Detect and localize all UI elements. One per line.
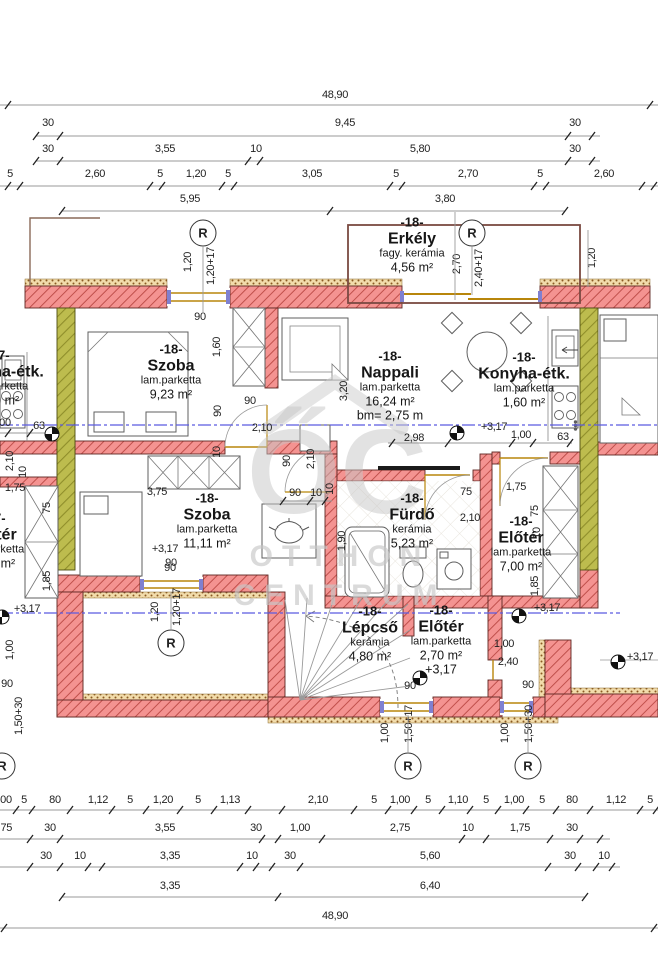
dimension-label: 6,40: [420, 880, 440, 892]
dimension-label: 5: [425, 794, 431, 806]
dimension-label: 80: [49, 794, 61, 806]
dimension-label: 3,75: [147, 486, 167, 498]
dimension-label: 10: [324, 483, 336, 495]
dimension-label: 5,60: [420, 850, 440, 862]
dimension-label: +3,17: [14, 603, 40, 615]
dimension-label: 30: [566, 822, 578, 834]
floorplan-page: { "watermark": { "brand_initials": "ŐC",…: [0, 0, 658, 963]
dimension-label: 80: [566, 794, 578, 806]
dimension-label: 1,50+17: [403, 705, 415, 743]
dimension-label: 10: [531, 527, 543, 539]
dimension-label: 1,75: [506, 481, 526, 493]
dimension-label: 2,70: [458, 168, 478, 180]
dimension-label: 2,60: [85, 168, 105, 180]
dimension-label: 48,90: [322, 89, 348, 101]
dimension-label: 2,75: [390, 822, 410, 834]
dimension-label: 75: [529, 505, 541, 517]
dimension-label: 3,55: [155, 822, 175, 834]
dimension-label: 75: [460, 486, 472, 498]
dimension-label: 1,00: [290, 822, 310, 834]
dimension-label: 90: [212, 405, 224, 417]
dimension-label: 10: [17, 466, 29, 478]
dimension-label: 3,55: [155, 143, 175, 155]
dimension-label: 90: [289, 487, 301, 499]
dimension-label: 1,00: [494, 638, 514, 650]
dimension-label: 1,00: [379, 723, 391, 743]
dimension-label: 3,35: [160, 850, 180, 862]
dimension-label: 2,10: [460, 512, 480, 524]
dimension-label: 00: [0, 794, 12, 806]
dimension-label: 2,10: [4, 451, 16, 471]
dimension-label: 1,10: [448, 794, 468, 806]
dimension-label: 1,75: [0, 822, 12, 834]
dimension-label: 9,45: [335, 117, 355, 129]
dimension-label: 30: [42, 117, 54, 129]
dimension-label: 90: [194, 311, 206, 323]
dimension-label: 5: [537, 168, 543, 180]
dimension-label: 30: [44, 822, 56, 834]
dimension-label: 10: [250, 143, 262, 155]
dimension-label: 90: [164, 562, 176, 574]
dimension-label: 75: [41, 502, 53, 514]
dimension-label: 1,00: [504, 794, 524, 806]
dimension-label: 5: [225, 168, 231, 180]
dimension-label: 30: [564, 850, 576, 862]
dimension-label: 2,98: [404, 432, 424, 444]
dimension-label: 1,20: [186, 168, 206, 180]
dimension-label: 5: [393, 168, 399, 180]
dimension-label: +3,17: [152, 543, 178, 555]
dimension-label: 2,10: [308, 794, 328, 806]
dimension-label: 90: [281, 455, 293, 467]
dimension-label: 1,85: [529, 576, 541, 596]
dimension-label: 00: [0, 417, 11, 429]
dimension-label: 5: [647, 794, 653, 806]
dimension-label: 5: [127, 794, 133, 806]
dimension-label: 2,40: [498, 656, 518, 668]
dimension-label: 63: [557, 431, 569, 443]
dimension-label: 30: [569, 143, 581, 155]
dimension-label: 1,60: [211, 337, 223, 357]
dimension-label: 2,70: [451, 254, 463, 274]
dimension-label: 90: [404, 680, 416, 692]
dimension-label: 3,80: [435, 193, 455, 205]
dimension-label: 1,00: [4, 640, 16, 660]
dimension-label: 30: [40, 850, 52, 862]
dimension-label: 5,95: [180, 193, 200, 205]
dimension-label: 1,13: [220, 794, 240, 806]
dimension-label: 1,20+17: [171, 588, 183, 626]
dimension-label: 5,80: [410, 143, 430, 155]
dimension-label: 3,35: [160, 880, 180, 892]
dimension-label: 5: [21, 794, 27, 806]
dimension-label: 5: [371, 794, 377, 806]
dimension-label: 30: [250, 822, 262, 834]
dimension-label: 1,90: [336, 531, 348, 551]
dimension-label: 10: [246, 850, 258, 862]
dimension-label: 90: [244, 395, 256, 407]
dimension-label: 1,75: [5, 482, 25, 494]
dimension-label: 30: [569, 117, 581, 129]
dimension-label: 2,60: [594, 168, 614, 180]
dimension-label: 1,20: [182, 252, 194, 272]
dimension-label: 1,20: [153, 794, 173, 806]
dimension-label: +3,17: [627, 651, 653, 663]
dimension-label: 1,20: [149, 602, 161, 622]
dimension-label: 5: [539, 794, 545, 806]
dimension-label: 1,50+30: [13, 697, 25, 735]
dimension-label: 10: [74, 850, 86, 862]
dimension-label: 10: [598, 850, 610, 862]
dimension-label: 3,05: [302, 168, 322, 180]
dimension-label: 10: [462, 822, 474, 834]
dimension-label: +3,17: [534, 602, 560, 614]
dimension-label: 1,12: [88, 794, 108, 806]
dimension-label: 10: [211, 446, 223, 458]
dimension-label: 5: [157, 168, 163, 180]
dimension-label: 1,50+30: [523, 705, 535, 743]
dimension-label: 1,85: [41, 571, 53, 591]
dimension-label: 1,12: [606, 794, 626, 806]
dimension-label: 5: [7, 168, 13, 180]
dimension-label: 1,00: [499, 723, 511, 743]
dimension-label: 3,20: [338, 381, 350, 401]
dimension-label: 30: [284, 850, 296, 862]
dimension-label: 5: [483, 794, 489, 806]
dimension-label: 2,40+17: [473, 249, 485, 287]
dimension-label: 2,10: [252, 422, 272, 434]
dimension-label: 1,20: [586, 248, 598, 268]
dimension-label: 30: [42, 143, 54, 155]
dimension-label: 63: [33, 420, 45, 432]
dimension-label: 1,00: [390, 794, 410, 806]
dimension-label: 90: [1, 678, 13, 690]
dimension-label: 1,75: [510, 822, 530, 834]
dimension-label: +3,17: [481, 421, 507, 433]
dimension-label: 90: [522, 679, 534, 691]
dimension-label: 10: [310, 487, 322, 499]
dimension-label: 1,20+17: [205, 247, 217, 285]
dimension-label: 48,90: [322, 910, 348, 922]
dimension-labels-layer: 48,90309,4530303,55105,803052,6051,2053,…: [0, 0, 658, 963]
dimension-label: 1,00: [511, 429, 531, 441]
dimension-label: 5: [195, 794, 201, 806]
dimension-label: 2,10: [305, 449, 317, 469]
